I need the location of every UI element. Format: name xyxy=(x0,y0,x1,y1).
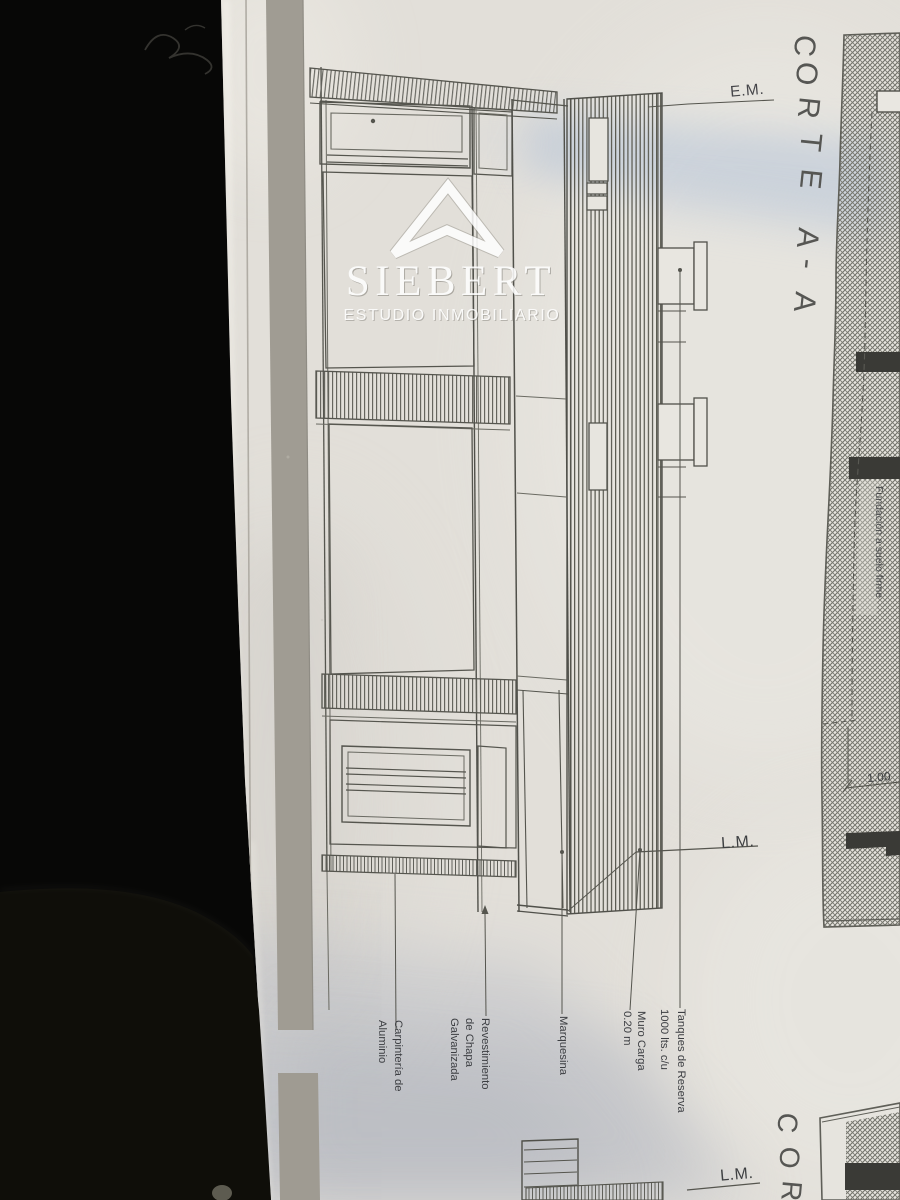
svg-text:1.00: 1.00 xyxy=(867,769,892,785)
svg-text:R: R xyxy=(775,1179,808,1200)
svg-text:O: O xyxy=(773,1145,806,1169)
svg-text:0.20 m: 0.20 m xyxy=(621,1011,633,1046)
svg-text:A: A xyxy=(790,226,825,249)
svg-text:L.M.: L.M. xyxy=(721,833,755,852)
svg-text:L.M.: L.M. xyxy=(720,1165,754,1185)
svg-text:T: T xyxy=(793,131,828,153)
svg-text:SIEBERT: SIEBERT xyxy=(346,258,556,305)
svg-text:Fundación a suelo firme: Fundación a suelo firme xyxy=(873,486,885,598)
svg-text:C: C xyxy=(771,1111,804,1134)
svg-text:A: A xyxy=(787,290,822,313)
svg-text:Galvanizada: Galvanizada xyxy=(448,1018,460,1082)
svg-text:de Chapa: de Chapa xyxy=(463,1018,475,1068)
svg-text:Aluminio: Aluminio xyxy=(376,1020,388,1063)
svg-text:C: C xyxy=(787,33,822,58)
svg-text:ESTUDIO INMOBILIARIO: ESTUDIO INMOBILIARIO xyxy=(344,307,561,324)
svg-text:Tanques de Reserva: Tanques de Reserva xyxy=(675,1009,687,1113)
svg-text:Marquesina: Marquesina xyxy=(557,1016,569,1076)
svg-text:E.M.: E.M. xyxy=(730,81,765,101)
svg-text:1000 lts. c/u: 1000 lts. c/u xyxy=(658,1009,670,1070)
svg-text:Revestimiento: Revestimiento xyxy=(479,1018,491,1090)
svg-text:Carpintería de: Carpintería de xyxy=(392,1020,404,1092)
svg-text:O: O xyxy=(789,60,824,87)
svg-text:Muro Carga: Muro Carga xyxy=(635,1011,647,1071)
svg-text:E: E xyxy=(793,167,828,190)
svg-text:R: R xyxy=(791,95,826,120)
